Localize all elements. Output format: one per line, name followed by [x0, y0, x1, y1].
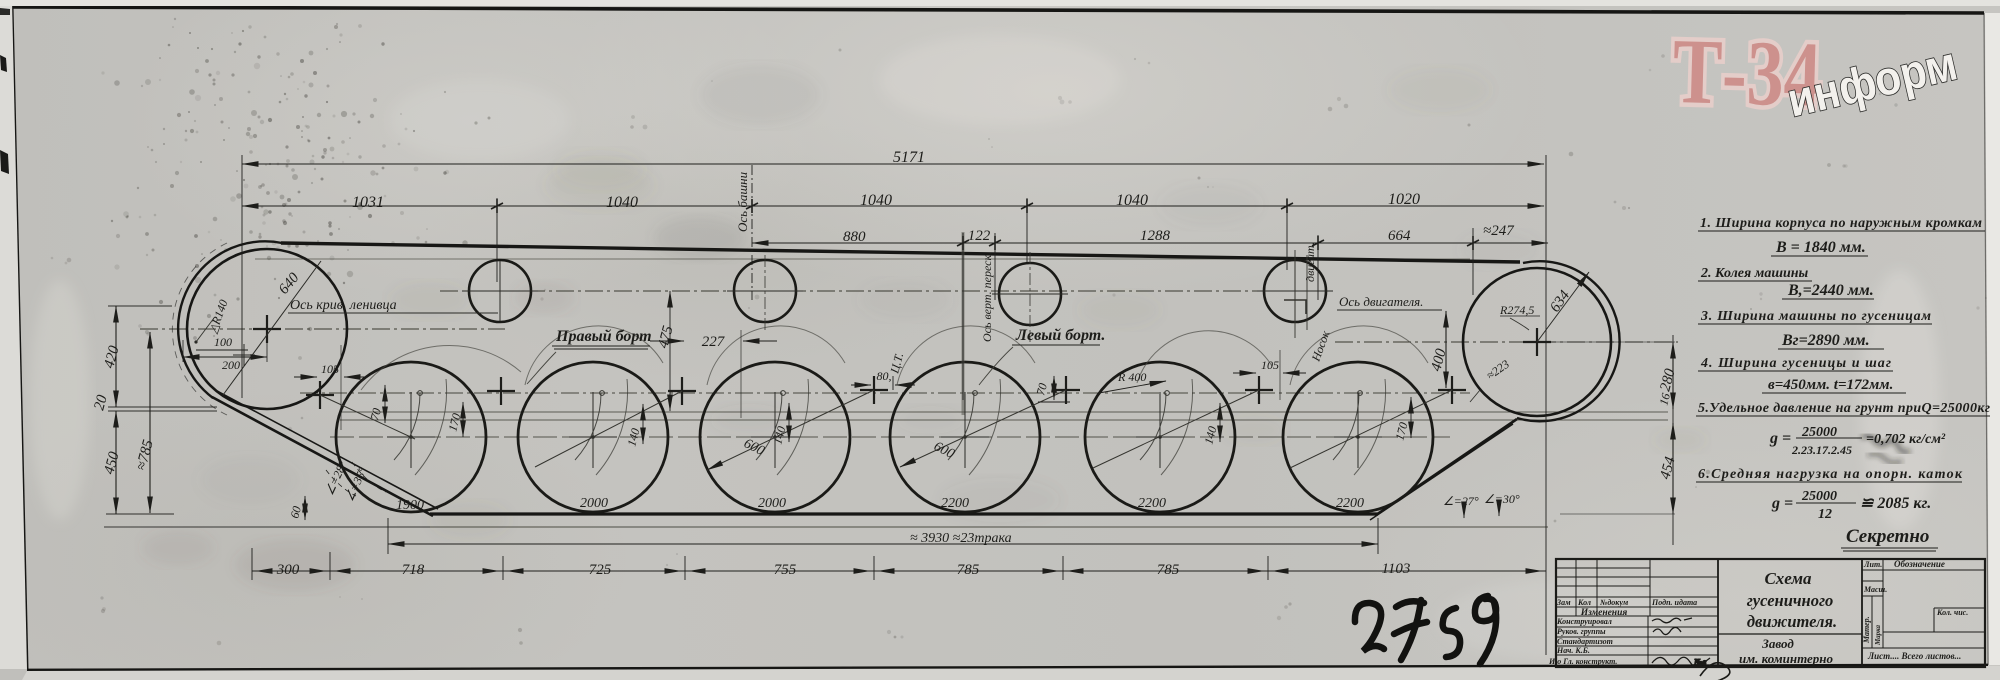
svg-text:12: 12 — [1818, 507, 1832, 522]
svg-text:1. Ширина корпуса по наружным: 1. Ширина корпуса по наружным кромкам — [1700, 216, 1982, 231]
svg-text:600: 600 — [741, 436, 767, 459]
svg-text:70: 70 — [367, 407, 384, 422]
svg-text:20: 20 — [91, 393, 110, 412]
svg-text:880: 880 — [843, 229, 866, 245]
svg-text:60: 60 — [287, 505, 304, 520]
svg-text:И.о Гл. конструкт.: И.о Гл. конструкт. — [1548, 657, 1617, 666]
svg-text:движителя.: движителя. — [1747, 612, 1837, 631]
svg-text:3. Ширина машины по гусеницам: 3. Ширина машины по гусеницам — [1700, 309, 1931, 324]
svg-text:634: 634 — [1547, 287, 1573, 315]
svg-text:∠=27°: ∠=27° — [1443, 494, 1479, 508]
svg-text:R274,5: R274,5 — [1499, 303, 1534, 317]
svg-text:5.Удельное давление на грунт п: 5.Удельное давление на грунт приQ=25000к… — [1698, 401, 1990, 416]
svg-text:В,=2440 мм.: В,=2440 мм. — [1787, 282, 1874, 299]
svg-text:1040: 1040 — [606, 194, 638, 211]
svg-text:725: 725 — [589, 562, 612, 578]
svg-text:5171: 5171 — [893, 149, 925, 166]
svg-text:Ц.Т.: Ц.Т. — [887, 351, 906, 375]
svg-text:Марка: Марка — [1874, 625, 1882, 646]
svg-text:≈785: ≈785 — [133, 438, 157, 472]
svg-text:785: 785 — [1157, 562, 1180, 578]
svg-text:Завод: Завод — [1761, 636, 1794, 651]
svg-text:1040: 1040 — [860, 192, 892, 209]
svg-text:300: 300 — [276, 562, 300, 578]
svg-text:2200: 2200 — [941, 496, 969, 511]
svg-text:им. коминтерно: им. коминтерно — [1739, 651, 1834, 666]
svg-text:755: 755 — [774, 562, 797, 578]
svg-text:гусеничного: гусеничного — [1747, 591, 1834, 610]
svg-text:25000: 25000 — [1801, 489, 1837, 504]
svg-text:Обозначение: Обозначение — [1894, 559, 1945, 569]
svg-text:Ось башни: Ось башни — [735, 171, 750, 232]
svg-text:≈223: ≈223 — [1484, 357, 1512, 383]
svg-text:1031: 1031 — [352, 194, 384, 211]
svg-text:785: 785 — [957, 562, 980, 578]
svg-text:Лист.... Всего листов...: Лист.... Всего листов... — [1867, 651, 1961, 661]
svg-text:Правый борт: Правый борт — [555, 328, 652, 345]
svg-text:2000: 2000 — [758, 496, 786, 511]
svg-text:6.Средняя нагрузка на опорн. к: 6.Средняя нагрузка на опорн. каток — [1698, 467, 1963, 482]
svg-text:Конструировал: Конструировал — [1556, 617, 1612, 626]
svg-text:≌ 2085 кг.: ≌ 2085 кг. — [1860, 495, 1931, 512]
svg-text:1040: 1040 — [1116, 192, 1148, 209]
svg-text:400: 400 — [1428, 347, 1449, 373]
svg-text:4. Ширина гусеницы и шаг: 4. Ширина гусеницы и шаг — [1700, 356, 1891, 371]
svg-text:1900: 1900 — [396, 498, 424, 513]
svg-text:420: 420 — [101, 344, 122, 370]
svg-text:70: 70 — [1033, 382, 1050, 397]
svg-text:2200: 2200 — [1336, 496, 1364, 511]
svg-text:В = 1840 мм.: В = 1840 мм. — [1775, 239, 1866, 256]
svg-text:1288: 1288 — [1140, 228, 1171, 244]
svg-text:140: 140 — [1201, 425, 1219, 446]
svg-text:227: 227 — [702, 334, 726, 350]
svg-text:105: 105 — [321, 362, 339, 376]
svg-text:16: 16 — [1656, 392, 1673, 407]
svg-text:№докум: №докум — [1600, 598, 1629, 607]
svg-text:Зам: Зам — [1556, 598, 1571, 607]
svg-text:2200: 2200 — [1138, 496, 1166, 511]
svg-text:200: 200 — [222, 358, 240, 372]
svg-text:718: 718 — [402, 562, 425, 578]
svg-text:105: 105 — [1261, 358, 1279, 372]
svg-text:Матер.: Матер. — [1862, 616, 1871, 644]
svg-text:2.23.17.2.45: 2.23.17.2.45 — [1791, 443, 1852, 457]
svg-text:Лит.: Лит. — [1863, 560, 1882, 569]
svg-text:Стандартизот: Стандартизот — [1557, 637, 1613, 646]
svg-text:=0,702 кг/см²: =0,702 кг/см² — [1866, 432, 1946, 447]
svg-text:g =: g = — [1769, 430, 1791, 447]
svg-text:475: 475 — [655, 324, 676, 350]
svg-text:280: 280 — [1657, 367, 1678, 393]
svg-text:Ось крив. ленивца: Ось крив. ленивца — [290, 298, 397, 313]
svg-text:∠=30°: ∠=30° — [1484, 492, 1520, 506]
svg-text:Нач. К.Б.: Нач. К.Б. — [1556, 646, 1590, 655]
svg-text:454: 454 — [1657, 455, 1678, 481]
svg-text:Секретно: Секретно — [1846, 526, 1929, 547]
svg-text:Руков. группы: Руков. группы — [1557, 627, 1606, 636]
svg-text:двигат.: двигат. — [1303, 242, 1317, 282]
svg-text:170: 170 — [445, 412, 463, 433]
svg-text:Кол: Кол — [1577, 598, 1591, 607]
svg-text:2. Колея машины: 2. Колея машины — [1700, 266, 1809, 281]
svg-text:450: 450 — [101, 450, 122, 476]
svg-text:Левый борт.: Левый борт. — [1015, 327, 1105, 344]
svg-text:664: 664 — [1388, 228, 1411, 244]
svg-text:2000: 2000 — [580, 496, 608, 511]
svg-text:в=450мм. t=172мм.: в=450мм. t=172мм. — [1768, 377, 1893, 393]
svg-text:≈247: ≈247 — [1483, 223, 1515, 239]
svg-text:Вг=2890 мм.: Вг=2890 мм. — [1781, 332, 1870, 349]
svg-text:Ось верт. переск.: Ось верт. переск. — [980, 252, 994, 342]
svg-text:1103: 1103 — [1382, 561, 1411, 577]
svg-text:g =: g = — [1771, 495, 1793, 512]
svg-text:640: 640 — [276, 270, 303, 298]
svg-text:≈ 3930 ≈23трака: ≈ 3930 ≈23трака — [910, 531, 1012, 546]
svg-text:1020: 1020 — [1388, 191, 1420, 208]
svg-text:R 400: R 400 — [1117, 370, 1146, 384]
svg-text:140: 140 — [624, 427, 642, 448]
svg-text:Масш.: Масш. — [1863, 585, 1887, 594]
svg-text:100: 100 — [214, 335, 232, 349]
svg-text:122: 122 — [968, 228, 991, 244]
svg-text:Кол. чис.: Кол. чис. — [1936, 608, 1968, 617]
svg-text:Схема: Схема — [1764, 569, 1812, 588]
svg-text:Подп. идата: Подп. идата — [1651, 598, 1697, 607]
svg-text:170: 170 — [1392, 421, 1410, 442]
svg-text:Ось двигателя.: Ось двигателя. — [1339, 294, 1423, 309]
svg-text:№в: №в — [1693, 657, 1706, 667]
